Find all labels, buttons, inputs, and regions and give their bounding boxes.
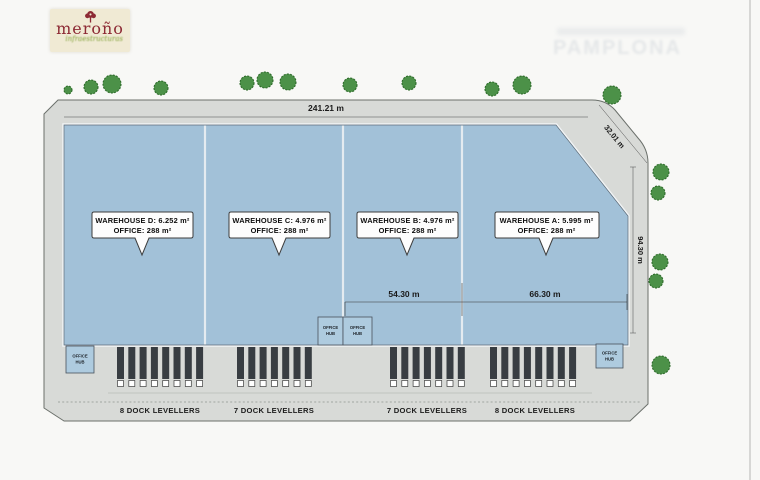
office-hub-label: HUB	[326, 331, 335, 336]
tree-icon	[652, 254, 668, 270]
warehouse-area-label: WAREHOUSE B: 4.976 m²	[360, 216, 454, 225]
dock-leveller-plate	[260, 381, 266, 387]
dock-leveller-bar	[271, 347, 278, 379]
dimension-label-warehouse-a: 66.30 m	[529, 289, 561, 299]
office-hub-middle-left: OFFICE HUB	[318, 317, 343, 345]
office-area-label: OFFICE: 288 m²	[379, 226, 437, 235]
dock-leveller-plate	[547, 381, 553, 387]
tree-icon	[84, 80, 98, 94]
dock-leveller-plate	[305, 381, 311, 387]
dock-leveller-bar	[196, 347, 203, 379]
dock-leveller-bar	[435, 347, 442, 379]
dock-leveller-plate	[249, 381, 255, 387]
dock-leveller-plate	[524, 381, 530, 387]
dock-leveller-bar	[248, 347, 255, 379]
dock-leveller-bar	[458, 347, 465, 379]
office-area-label: OFFICE: 288 m²	[251, 226, 309, 235]
dock-leveller-plate	[536, 381, 542, 387]
dock-leveller-plate	[163, 381, 169, 387]
tree-icon	[402, 76, 416, 90]
dock-leveller-bar	[401, 347, 408, 379]
dock-leveller-plate	[558, 381, 564, 387]
dock-leveller-plate	[238, 381, 244, 387]
tree-icon	[513, 76, 531, 94]
dock-leveller-bar	[424, 347, 431, 379]
tree-icon	[257, 72, 273, 88]
office-hub-middle-right: OFFICE HUB	[343, 317, 372, 345]
dock-leveller-plate	[413, 381, 419, 387]
office-hub-label: OFFICE	[602, 351, 618, 356]
dock-leveller-bar	[237, 347, 244, 379]
dock-leveller-bar	[390, 347, 397, 379]
office-hub-label: HUB	[353, 331, 362, 336]
dimension-label-top: 241.21 m	[308, 103, 344, 113]
office-hub-right: OFFICE HUB	[596, 344, 623, 368]
office-hub-label: HUB	[605, 357, 614, 362]
dock-leveller-plate	[502, 381, 508, 387]
warehouse-area-label: WAREHOUSE C: 4.976 m²	[232, 216, 326, 225]
dock-leveller-bar	[413, 347, 420, 379]
dimension-label-warehouse-b: 54.30 m	[388, 289, 420, 299]
dock-leveller-plate	[185, 381, 191, 387]
site-plan-drawing: 241.21 m 32.01 m 94.30 m 54.30 m 66.30 m…	[0, 0, 760, 480]
dock-leveller-bar	[535, 347, 542, 379]
dock-leveller-bar	[260, 347, 267, 379]
tree-icon	[603, 86, 621, 104]
scan-page-edge	[749, 0, 751, 480]
dock-leveller-plate	[174, 381, 180, 387]
dock-leveller-bar	[140, 347, 147, 379]
dock-leveller-plate	[458, 381, 464, 387]
tree-icon	[280, 74, 296, 90]
tree-icon	[154, 81, 168, 95]
office-area-label: OFFICE: 288 m²	[114, 226, 172, 235]
office-hub-label: OFFICE	[72, 354, 88, 359]
tree-icon	[653, 164, 669, 180]
tree-icon	[240, 76, 254, 90]
dock-leveller-bar	[513, 347, 520, 379]
dock-leveller-bar	[282, 347, 289, 379]
dock-leveller-bar	[128, 347, 135, 379]
dock-leveller-bar	[501, 347, 508, 379]
dock-leveller-bar	[305, 347, 312, 379]
dock-leveller-bar	[185, 347, 192, 379]
dock-leveller-bar	[162, 347, 169, 379]
dock-leveller-plate	[436, 381, 442, 387]
tree-icon	[64, 86, 72, 94]
tree-icon	[103, 75, 121, 93]
tree-icon	[343, 78, 357, 92]
dock-leveller-plate	[118, 381, 124, 387]
dock-label-warehouse-d: 8 DOCK LEVELLERS	[120, 406, 200, 415]
dock-label-warehouse-b: 7 DOCK LEVELLERS	[387, 406, 467, 415]
dock-leveller-plate	[197, 381, 203, 387]
dock-leveller-plate	[402, 381, 408, 387]
logo: meroño infraestructuras	[50, 9, 130, 52]
dock-leveller-bar	[447, 347, 454, 379]
office-hub-label: OFFICE	[350, 325, 366, 330]
dock-leveller-bar	[558, 347, 565, 379]
office-hub-left: OFFICE HUB	[66, 346, 94, 373]
dock-leveller-plate	[283, 381, 289, 387]
dock-leveller-bar	[117, 347, 124, 379]
dock-label-warehouse-c: 7 DOCK LEVELLERS	[234, 406, 314, 415]
warehouse-area-label: WAREHOUSE D: 6.252 m²	[95, 216, 189, 225]
dock-leveller-plate	[570, 381, 576, 387]
dock-leveller-plate	[294, 381, 300, 387]
tree-icon	[649, 274, 663, 288]
dock-leveller-bar	[294, 347, 301, 379]
dock-leveller-plate	[140, 381, 146, 387]
office-area-label: OFFICE: 288 m²	[518, 226, 576, 235]
dock-leveller-plate	[424, 381, 430, 387]
office-hub-label: HUB	[75, 360, 84, 365]
dock-leveller-plate	[513, 381, 519, 387]
tree-icon	[651, 186, 665, 200]
dock-leveller-plate	[491, 381, 497, 387]
dock-leveller-plate	[391, 381, 397, 387]
dock-leveller-bar	[524, 347, 531, 379]
dock-leveller-plate	[447, 381, 453, 387]
dimension-label-right: 94.30 m	[636, 236, 645, 264]
dock-leveller-plate	[151, 381, 157, 387]
logo-tagline: infraestructuras	[50, 35, 130, 43]
scanned-site-plan-page: PAMPLONA 241.21 m 32.01 m 94.30 m 54.30 …	[0, 0, 760, 480]
tree-icon	[652, 356, 670, 374]
dock-leveller-bar	[174, 347, 181, 379]
dock-leveller-plate	[129, 381, 135, 387]
dock-label-warehouse-a: 8 DOCK LEVELLERS	[495, 406, 575, 415]
dock-leveller-bar	[547, 347, 554, 379]
dock-leveller-bar	[490, 347, 497, 379]
dock-leveller-bar	[151, 347, 158, 379]
dock-leveller-plate	[271, 381, 277, 387]
dock-leveller-bar	[569, 347, 576, 379]
warehouse-area-label: WAREHOUSE A: 5.995 m²	[500, 216, 594, 225]
tree-icon	[485, 82, 499, 96]
office-hub-label: OFFICE	[323, 325, 339, 330]
